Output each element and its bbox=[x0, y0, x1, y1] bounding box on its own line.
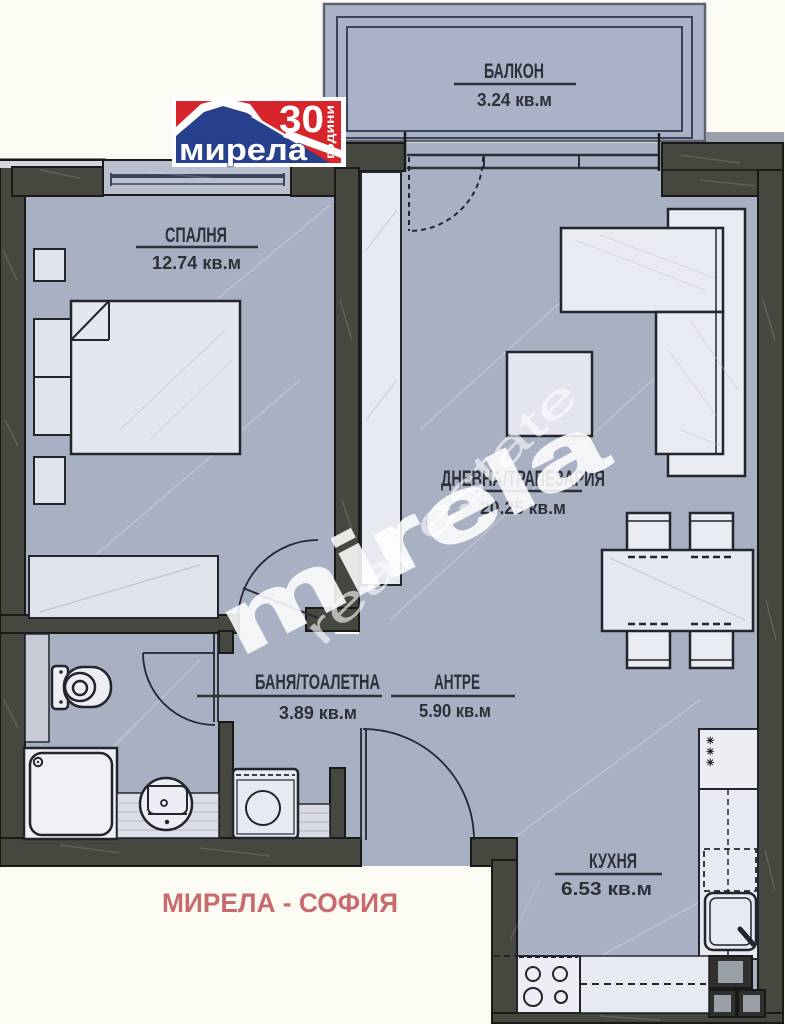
svg-text:30: 30 bbox=[279, 99, 324, 141]
svg-text:АНТРЕ: АНТРЕ bbox=[434, 671, 480, 694]
svg-text:✳: ✳ bbox=[706, 736, 715, 747]
svg-text:МИРЕЛА - СОФИЯ: МИРЕЛА - СОФИЯ bbox=[162, 888, 398, 918]
svg-text:3.89 кв.м: 3.89 кв.м bbox=[279, 703, 357, 723]
svg-text:5.90 кв.м: 5.90 кв.м bbox=[419, 701, 491, 721]
svg-text:3.24 кв.м: 3.24 кв.м bbox=[477, 90, 552, 110]
svg-text:БАЛКОН: БАЛКОН bbox=[484, 60, 544, 83]
svg-text:✳: ✳ bbox=[706, 758, 715, 769]
svg-text:✳: ✳ bbox=[706, 747, 715, 758]
svg-text:години: години bbox=[323, 105, 337, 159]
svg-text:СПАЛНЯ: СПАЛНЯ bbox=[165, 224, 227, 247]
svg-text:БАНЯ/ТОАЛЕТНА: БАНЯ/ТОАЛЕТНА bbox=[255, 671, 380, 694]
svg-text:12.74 кв.м: 12.74 кв.м bbox=[152, 253, 241, 273]
svg-text:6.53 кв.м: 6.53 кв.м bbox=[561, 879, 652, 899]
svg-text:КУХНЯ: КУХНЯ bbox=[589, 850, 637, 873]
